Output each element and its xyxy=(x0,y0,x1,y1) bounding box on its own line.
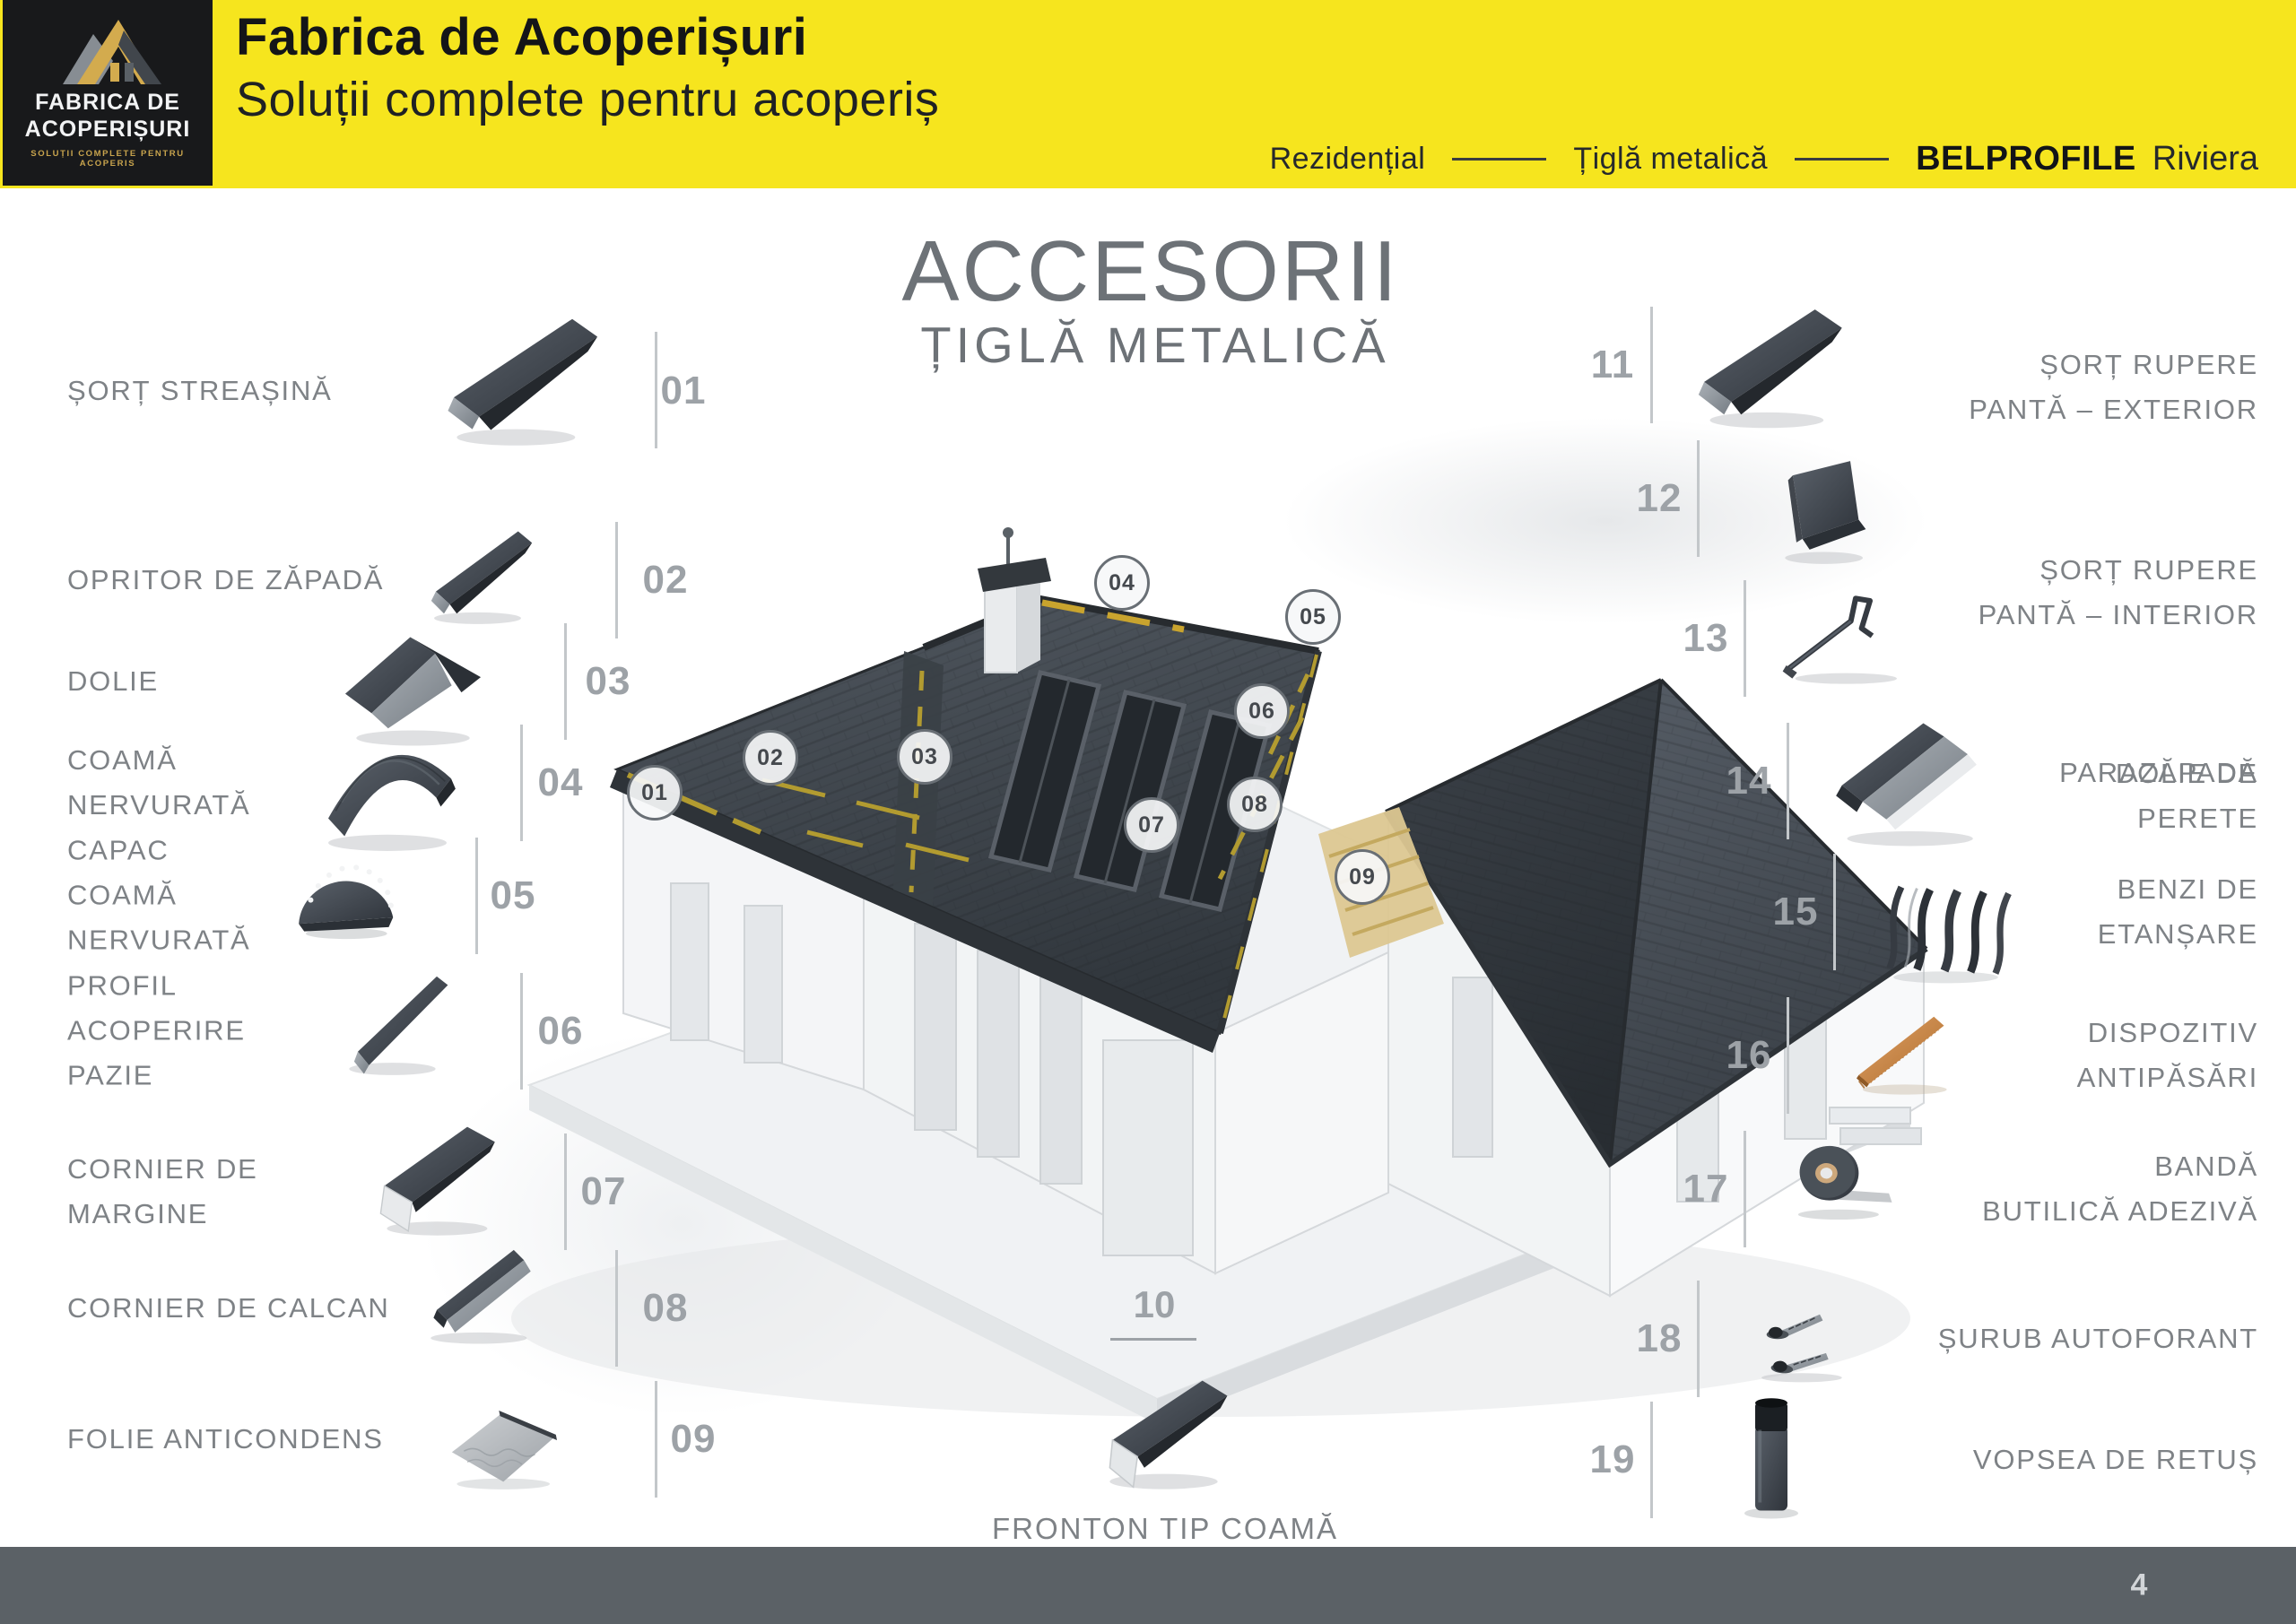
callout-02: 02 xyxy=(743,730,798,786)
item-divider xyxy=(1697,1281,1700,1397)
item-number: 09 xyxy=(671,1417,717,1462)
item-number: 07 xyxy=(581,1169,627,1214)
item-number: 04 xyxy=(538,760,584,805)
breadcrumb-divider xyxy=(1452,158,1546,161)
product-08-image xyxy=(393,1238,558,1350)
page-title: ACCESORII xyxy=(901,222,1399,321)
breadcrumb-category: Rezidențial xyxy=(1270,142,1426,177)
page-subtitle: ȚIGLĂ METALICĂ xyxy=(920,316,1389,374)
item-number: 01 xyxy=(661,369,707,413)
logo-text-line1: FABRICA DE xyxy=(3,90,213,116)
company-subtitle: Soluții complete pentru acoperiș xyxy=(236,72,939,127)
item-label: FOLIE ANTICONDENS xyxy=(67,1417,384,1462)
breadcrumb: Rezidențial Țiglă metalică BELPROFILE Ri… xyxy=(1270,140,2258,178)
item-divider xyxy=(564,623,567,740)
brand-series: Riviera xyxy=(2152,140,2258,178)
item-divider xyxy=(655,1381,657,1498)
item-number: 17 xyxy=(1683,1167,1729,1211)
product-07-image xyxy=(359,1116,513,1241)
product-05-image xyxy=(283,834,413,960)
item-divider xyxy=(564,1133,567,1250)
item-label: BANDĂ BUTILICĂ ADEZIVĂ xyxy=(1982,1144,2258,1234)
product-06-image xyxy=(318,949,466,1090)
breadcrumb-product-type: Țiglă metalică xyxy=(1573,142,1768,177)
item-number: 10 xyxy=(1134,1283,1176,1326)
callout-09: 09 xyxy=(1335,849,1390,905)
callout-04: 04 xyxy=(1094,555,1150,611)
item-label: COAMĂ NERVURATĂ xyxy=(67,738,251,828)
item-label: VOPSEA DE RETUȘ xyxy=(1973,1437,2258,1482)
item-number: 03 xyxy=(586,659,631,704)
callout-08: 08 xyxy=(1227,777,1283,832)
item-label: ȘURUB AUTOFORANT xyxy=(1938,1316,2258,1361)
item-number: 12 xyxy=(1637,476,1683,521)
product-19-image xyxy=(1726,1388,1816,1523)
item-label: ȘORȚ RUPERE PANTĂ – INTERIOR xyxy=(1979,548,2258,638)
callout-07: 07 xyxy=(1124,797,1179,853)
item-label: DOLIE DE PERETE xyxy=(2116,751,2258,841)
item-label: PROFIL ACOPERIRE PAZIE xyxy=(67,964,246,1099)
item-underline xyxy=(1110,1338,1196,1341)
logo-text-line2: ACOPERIȘURI xyxy=(3,117,213,143)
item-label: ȘORȚ STREAȘINĂ xyxy=(67,369,333,413)
item-number: 15 xyxy=(1773,890,1819,934)
item-divider xyxy=(615,522,618,638)
item-divider xyxy=(1650,1402,1653,1518)
item-number: 13 xyxy=(1683,616,1729,661)
logo-tagline: SOLUȚII COMPLETE PENTRU ACOPERIS xyxy=(3,149,213,169)
product-10-image xyxy=(1081,1356,1247,1499)
callout-03: 03 xyxy=(897,729,952,785)
item-label: DISPOZITIV ANTIPĂSĂRI xyxy=(2077,1011,2258,1100)
header: FABRICA DE ACOPERIȘURI SOLUȚII COMPLETE … xyxy=(0,0,2296,188)
product-16-image xyxy=(1839,982,1973,1116)
item-label: CORNIER DE MARGINE xyxy=(67,1147,258,1237)
house-illustration xyxy=(484,421,1955,1462)
catalog-page: FABRICA DE ACOPERIȘURI SOLUȚII COMPLETE … xyxy=(0,0,2296,1624)
product-18-image xyxy=(1742,1291,1872,1392)
item-label: CORNIER DE CALCAN xyxy=(67,1286,390,1331)
product-09-image xyxy=(425,1385,579,1495)
item-divider xyxy=(520,725,523,841)
item-label: OPRITOR DE ZĂPADĂ xyxy=(67,558,384,603)
roof-logo-icon xyxy=(54,5,161,96)
item-divider xyxy=(615,1250,618,1367)
item-number: 16 xyxy=(1726,1033,1772,1078)
item-label: FRONTON TIP COAMĂ xyxy=(992,1512,1338,1546)
item-divider xyxy=(1744,1131,1746,1247)
company-logo: FABRICA DE ACOPERIȘURI SOLUȚII COMPLETE … xyxy=(3,0,213,186)
item-divider xyxy=(655,332,657,448)
item-number: 18 xyxy=(1637,1316,1683,1361)
product-17-image xyxy=(1783,1121,1904,1238)
item-divider xyxy=(1787,997,1789,1114)
item-divider xyxy=(1650,307,1653,423)
item-divider xyxy=(520,973,523,1090)
footer-bar xyxy=(0,1547,2296,1624)
callout-06: 06 xyxy=(1234,683,1290,739)
item-number: 06 xyxy=(538,1009,584,1054)
item-number: 14 xyxy=(1726,759,1772,803)
breadcrumb-divider xyxy=(1795,158,1889,161)
item-divider xyxy=(1833,854,1836,970)
callout-01: 01 xyxy=(627,765,683,821)
item-number: 05 xyxy=(491,873,536,918)
item-divider xyxy=(1697,440,1700,557)
item-label: ȘORȚ RUPERE PANTĂ – EXTERIOR xyxy=(1969,343,2258,432)
item-divider xyxy=(475,838,478,954)
callout-05: 05 xyxy=(1285,589,1341,645)
product-13-image xyxy=(1780,569,1924,704)
item-divider xyxy=(1787,723,1789,839)
item-number: 19 xyxy=(1590,1437,1636,1482)
item-number: 02 xyxy=(643,558,689,603)
item-label: BENZI DE ETANȘARE xyxy=(2098,867,2258,957)
item-number: 11 xyxy=(1591,343,1635,387)
company-title: Fabrica de Acoperișuri xyxy=(236,7,807,67)
item-label: DOLIE xyxy=(67,659,159,704)
product-01-image xyxy=(429,301,606,461)
item-label: CAPAC COAMĂ NERVURATĂ xyxy=(67,829,251,964)
item-divider xyxy=(1744,580,1746,697)
page-number: 4 xyxy=(2131,1568,2148,1603)
item-number: 08 xyxy=(643,1286,689,1331)
brand-name: BELPROFILE xyxy=(1916,140,2136,178)
